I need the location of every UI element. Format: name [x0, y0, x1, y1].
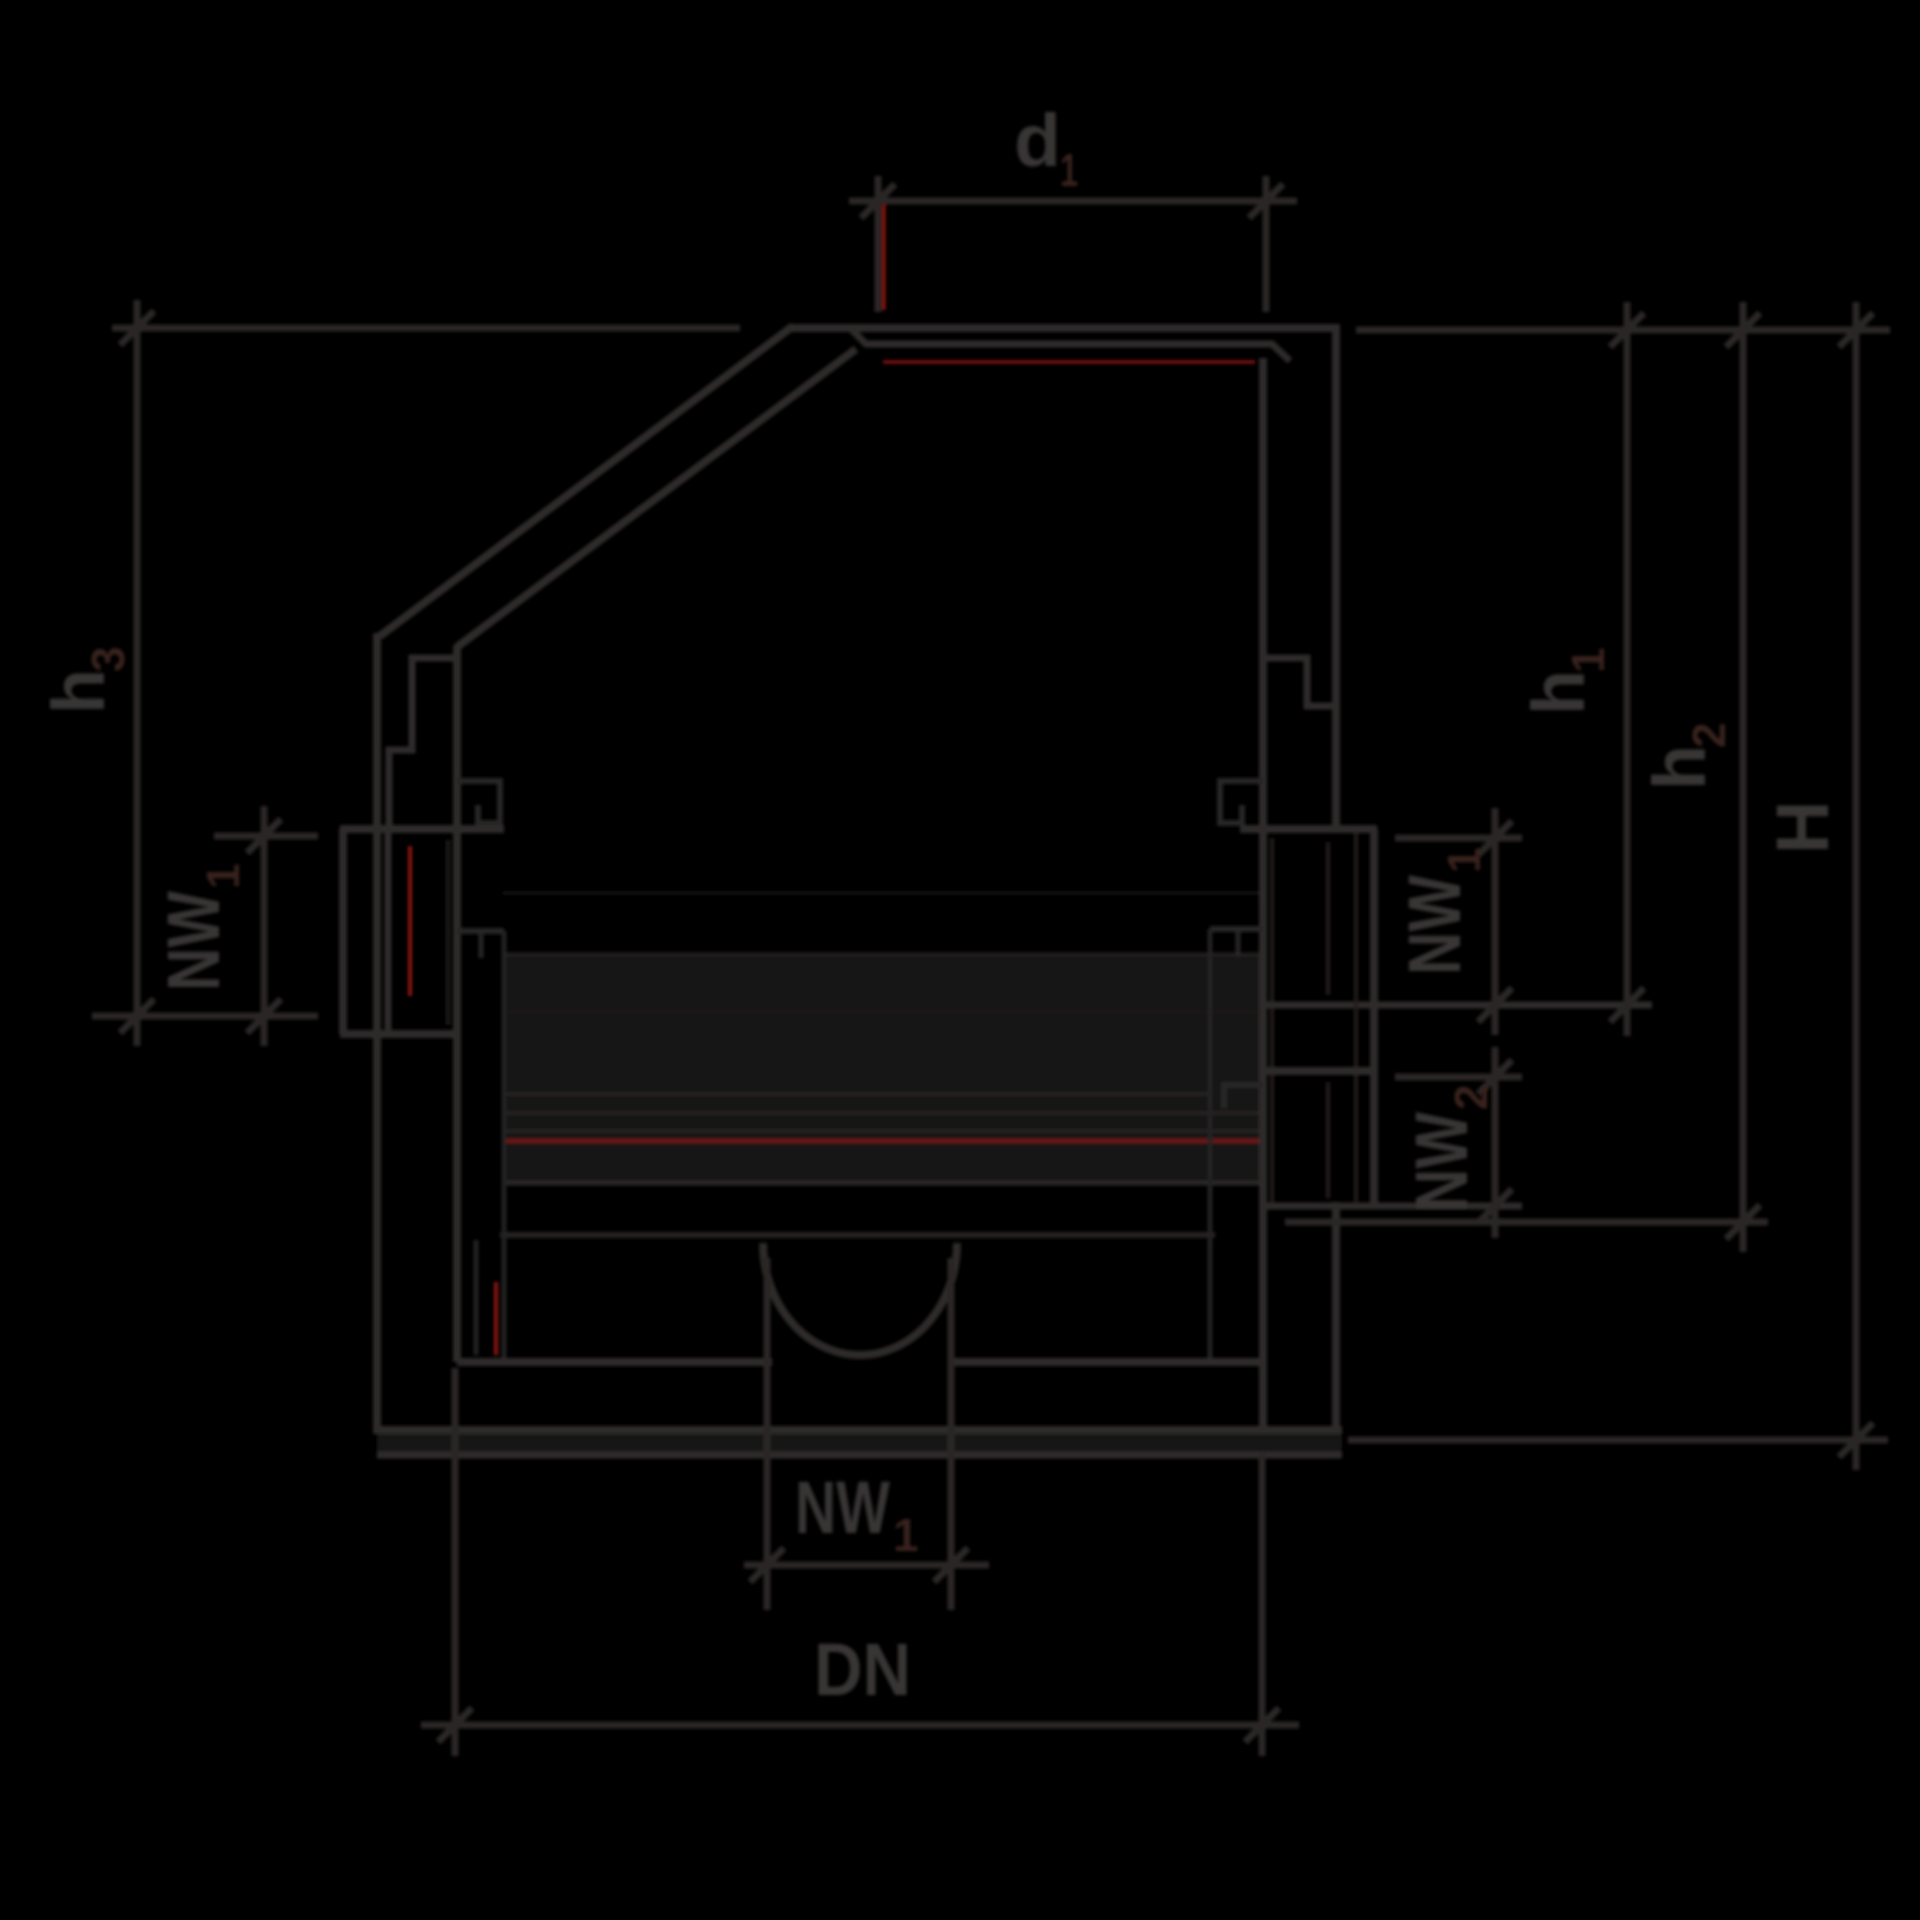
svg-text:1: 1 [1060, 144, 1078, 196]
svg-text:1: 1 [197, 863, 249, 889]
svg-text:NW: NW [152, 891, 235, 991]
svg-text:1: 1 [893, 1509, 919, 1561]
svg-text:1: 1 [1438, 847, 1490, 873]
svg-text:NW: NW [795, 1466, 890, 1549]
svg-text:DN: DN [814, 1628, 911, 1711]
svg-text:h: h [37, 669, 120, 714]
svg-text:NW: NW [1400, 1112, 1483, 1212]
svg-text:3: 3 [82, 646, 134, 672]
svg-text:1: 1 [1562, 647, 1614, 673]
svg-text:d: d [1014, 99, 1061, 182]
svg-text:NW: NW [1393, 875, 1476, 975]
svg-text:H: H [1761, 801, 1844, 854]
svg-text:2: 2 [1445, 1084, 1497, 1110]
svg-text:h: h [1638, 745, 1721, 790]
svg-text:2: 2 [1683, 722, 1735, 748]
svg-text:h: h [1517, 670, 1600, 715]
